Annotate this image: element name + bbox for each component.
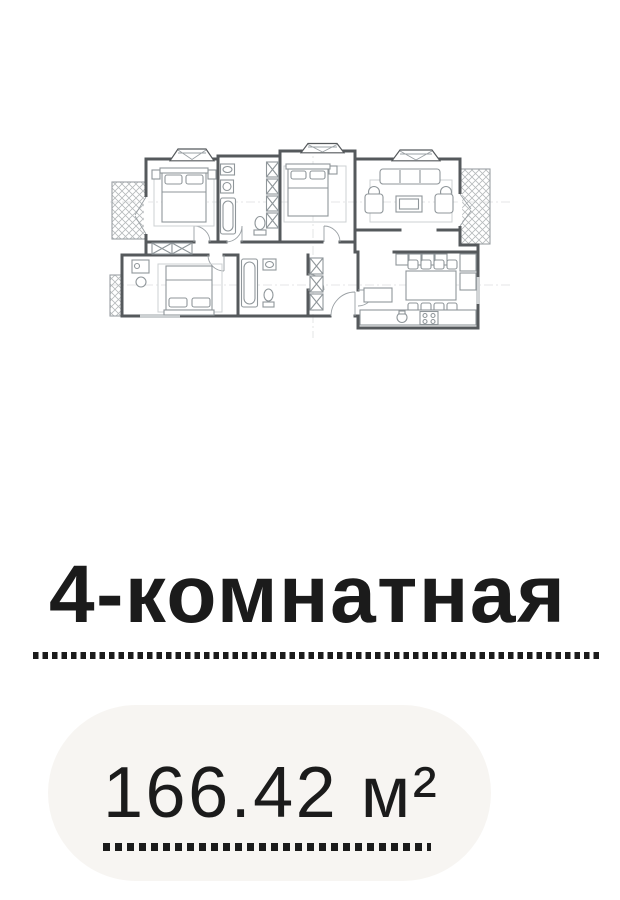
kitchen-dining-set xyxy=(360,254,476,325)
bed-2 xyxy=(286,164,337,216)
area-badge[interactable]: 166.42 м² xyxy=(48,705,491,881)
hall-closet xyxy=(310,258,323,310)
bed-1 xyxy=(152,168,216,222)
living-room-set xyxy=(365,169,453,213)
bay-windows xyxy=(170,144,440,161)
floorplan-figure[interactable] xyxy=(108,142,512,342)
title-dotted-divider xyxy=(33,652,600,659)
wardrobe-column xyxy=(267,162,279,228)
bathroom-1-fixtures xyxy=(221,164,267,235)
bathroom-2-fixtures xyxy=(242,259,277,307)
bed-3-and-desk xyxy=(132,260,214,315)
listing-card-page: 4-комнатная 166.42 м² xyxy=(0,0,620,900)
corridor-wardrobe xyxy=(152,243,192,254)
area-dotted-underline xyxy=(103,843,431,851)
floorplan-drawing xyxy=(108,142,512,342)
area-value: 166.42 м² xyxy=(103,757,439,829)
listing-title[interactable]: 4-комнатная xyxy=(49,554,566,636)
door-swings xyxy=(194,226,374,316)
